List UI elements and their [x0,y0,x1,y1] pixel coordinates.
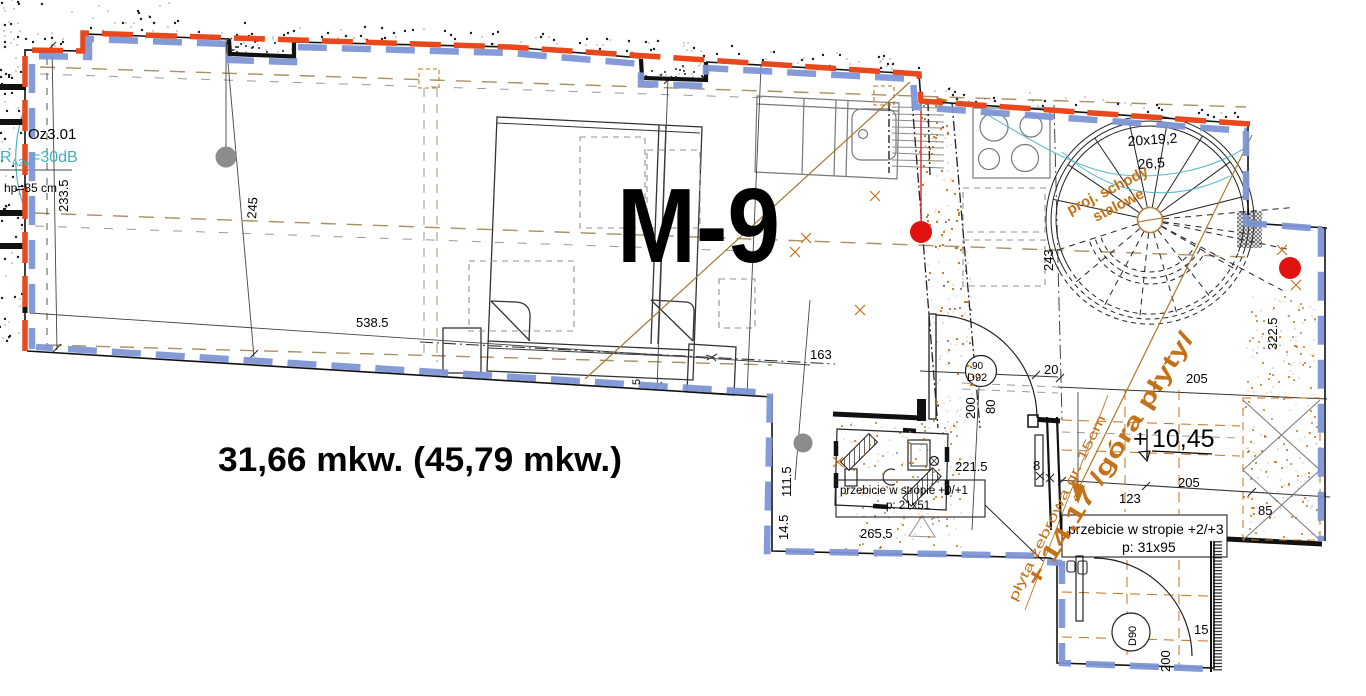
svg-text:p: 21x51: p: 21x51 [886,500,930,512]
svg-text:538.5: 538.5 [356,315,389,330]
svg-text:205: 205 [1186,371,1208,386]
svg-text:20: 20 [1044,362,1058,377]
svg-text:163: 163 [810,347,832,362]
svg-text:przebicie w stropie +0/+1: przebicie w stropie +0/+1 [840,485,968,497]
svg-text:85: 85 [1258,503,1272,518]
svg-text:205: 205 [1178,475,1200,490]
svg-text:5: 5 [631,379,643,385]
svg-text:221.5: 221.5 [955,459,988,474]
svg-text:90: 90 [972,361,984,372]
svg-text:243: 243 [1041,249,1056,271]
svg-text:D90: D90 [1127,626,1139,646]
svg-text:123: 123 [1119,491,1141,506]
svg-text:10,45: 10,45 [1152,425,1215,453]
svg-text:80: 80 [983,400,998,414]
svg-text:200: 200 [1158,650,1173,672]
svg-text:233.5: 233.5 [56,179,71,212]
svg-text:200: 200 [963,397,978,419]
svg-text:322.5: 322.5 [1265,317,1280,350]
svg-text:15: 15 [1194,622,1208,637]
svg-text:245: 245 [244,197,260,220]
svg-text:111.5: 111.5 [779,466,794,497]
svg-text:D92: D92 [967,372,987,384]
svg-text:14.5: 14.5 [776,515,791,540]
svg-text:przebicie w stropie +2/+3: przebicie w stropie +2/+3 [1068,521,1224,537]
svg-text:8: 8 [1033,458,1040,473]
svg-text:Oz3.01: Oz3.01 [28,126,76,143]
svg-text:M-9: M-9 [617,167,780,285]
svg-text:p: 31x95: p: 31x95 [1122,539,1176,555]
svg-text:hp=85 cm: hp=85 cm [4,181,57,195]
svg-text:31,66 mkw. (45,79 mkw.): 31,66 mkw. (45,79 mkw.) [218,441,622,479]
svg-text:265.5: 265.5 [860,526,893,541]
